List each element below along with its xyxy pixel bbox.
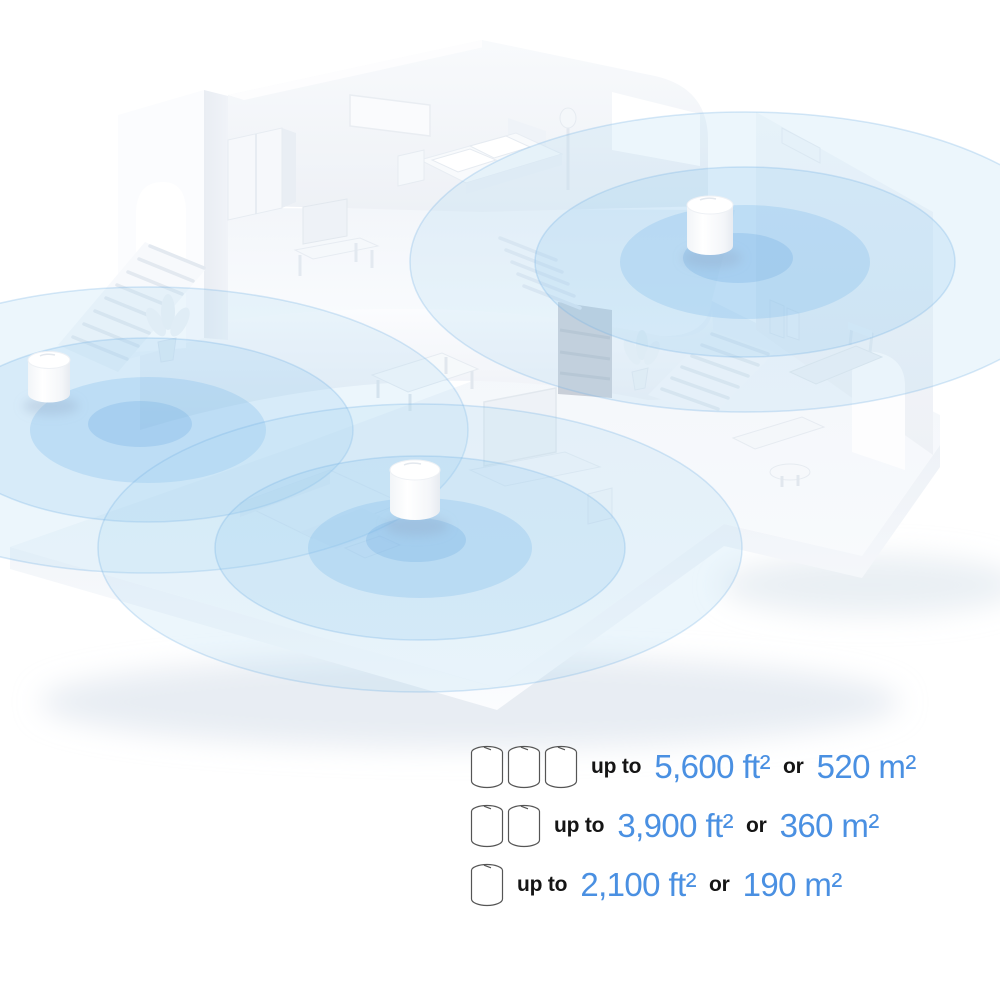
unit-icons	[470, 863, 507, 907]
deco-unit-icon	[470, 863, 504, 907]
or-label: or	[783, 755, 804, 779]
wardrobe	[228, 128, 296, 220]
unit-icons	[470, 745, 581, 789]
deco-unit-icon	[507, 804, 541, 848]
coverage-ft-value: 3,900 ft²	[617, 807, 733, 845]
legend-row-3-units: up to 5,600 ft² or 520 m²	[470, 742, 916, 792]
deco-unit-icon	[470, 804, 504, 848]
deco-unit-icon	[507, 745, 541, 789]
unit-icons	[470, 804, 544, 848]
up-to-label: up to	[517, 873, 567, 897]
deco-unit-living	[385, 460, 449, 536]
coverage-legend: up to 5,600 ft² or 520 m² up to 3,900 ft…	[470, 742, 916, 919]
coverage-ft-value: 2,100 ft²	[580, 866, 696, 904]
legend-row-1-unit: up to 2,100 ft² or 190 m²	[470, 860, 916, 910]
coverage-m-value: 520 m²	[817, 748, 916, 786]
deco-unit-bedroom	[682, 196, 742, 268]
nightstand	[398, 150, 424, 186]
deco-unit-icon	[544, 745, 578, 789]
legend-row-2-units: up to 3,900 ft² or 360 m²	[470, 801, 916, 851]
coverage-ft-value: 5,600 ft²	[654, 748, 770, 786]
deco-unit-icon	[470, 745, 504, 789]
or-label: or	[709, 873, 730, 897]
coverage-m-value: 190 m²	[743, 866, 842, 904]
page: up to 5,600 ft² or 520 m² up to 3,900 ft…	[0, 0, 1000, 1000]
wifi-coverage-living	[98, 404, 742, 692]
coverage-m-value: 360 m²	[780, 807, 879, 845]
up-to-label: up to	[554, 814, 604, 838]
up-to-label: up to	[591, 755, 641, 779]
or-label: or	[746, 814, 767, 838]
